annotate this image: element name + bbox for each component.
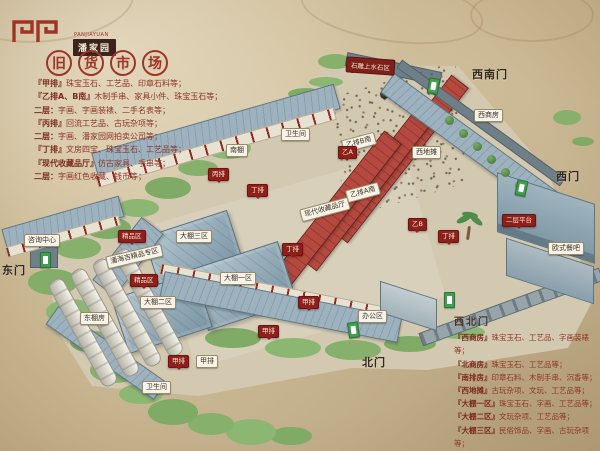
bush [501, 168, 510, 177]
legend-line: 『大棚一区』珠宝玉石、字画、工艺品等； [454, 397, 600, 410]
legend-line: 『大棚二区』文玩杂项、工艺品等； [454, 410, 600, 423]
legend-line: 『南排房』印章石料、木制手串、沉香等； [454, 371, 600, 384]
legend-line: 二层：字画、潘家园网拍卖公司等； [34, 130, 259, 143]
row-ding-badge: 丁排 [438, 230, 459, 243]
gate-signboard-icon [347, 321, 360, 338]
boutique-zone-badge: 精品区 [130, 274, 158, 287]
restroom-label: 卫生间 [142, 381, 171, 394]
east-shed-label: 东棚房 [80, 312, 109, 325]
legend-line: 二层：字画、字画装裱、二手名表等； [34, 104, 259, 117]
title-char: 货 [78, 50, 104, 76]
bush [473, 142, 482, 151]
bush [487, 155, 496, 164]
row-bing-badge: 丙排 [208, 168, 229, 181]
title-char: 市 [110, 50, 136, 76]
west-commercial-building-label: 西商房 [474, 109, 503, 122]
panjiayuan-logo: PANJIAYUAN 潘家园 [10, 14, 180, 48]
foliage-east [553, 110, 581, 125]
restroom-label: 卫生间 [281, 128, 310, 141]
title-char: 场 [142, 50, 168, 76]
shed-zone-2-label: 大棚二区 [140, 296, 176, 309]
row-jia-badge: 甲排 [298, 296, 319, 309]
boutique-zone-badge: 精品区 [118, 230, 146, 243]
southwest-gate-label: 西南门 [472, 66, 508, 82]
east-gate-label: 东门 [2, 262, 26, 278]
legend-line: 『丙排』回流工艺品、古玩杂项等； [34, 117, 259, 130]
row-yi-b-badge: 乙B [408, 218, 427, 231]
row-jia-label: 甲排 [196, 355, 218, 368]
row-ding-badge: 丁排 [282, 243, 303, 256]
logo-subtext: PANJIAYUAN [74, 32, 109, 38]
second-floor-terrace-badge: 二层平台 [502, 214, 536, 227]
row-ding-badge: 丁排 [247, 184, 268, 197]
information-center-label: 咨询中心 [24, 234, 60, 247]
gate-signboard-icon [40, 252, 51, 268]
legend-line: 『乙排A、B南』木制手串、家具小件、珠宝玉石等； [34, 90, 259, 103]
cloud-motif [296, 0, 487, 54]
west-gate-label: 西门 [556, 168, 580, 184]
south-shed-label: 南棚 [226, 144, 248, 157]
northwest-gate-label: 西北门 [454, 316, 600, 329]
stone-carving-area-sign: 石雕上水石区 [346, 56, 396, 75]
shed-zone-3-label: 大棚三区 [176, 230, 212, 243]
bush [459, 129, 468, 138]
row-jia-badge: 甲排 [168, 355, 189, 368]
logo-emblem [10, 14, 62, 46]
legend-line: 『西商房』珠宝玉石、工艺品、字画装裱等； [454, 331, 600, 357]
office-area-label: 办公区 [358, 310, 387, 323]
west-flea-ground-label: 西地摊 [412, 146, 441, 159]
legend-line: 『大棚三区』民俗饰品、字画、古玩杂项等； [454, 424, 600, 450]
shed-zone-1-label: 大棚一区 [220, 272, 256, 285]
row-yi-a-badge: 乙A [338, 146, 357, 159]
title-char: 旧 [46, 50, 72, 76]
legend-right: 西北门 『西商房』珠宝玉石、工艺品、字画装裱等； 『北商房』珠宝玉石、工艺品等；… [454, 316, 600, 451]
panjiayuan-market-map: PANJIAYUAN 潘家园 旧 货 市 场 『甲排』珠宝玉石、工艺品、印章石料… [0, 0, 600, 451]
gate-signboard-icon [444, 292, 455, 308]
restaurant-label: 欧式餐吧 [548, 242, 584, 255]
legend-line: 『北商房』珠宝玉石、工艺品等； [454, 358, 600, 371]
cloud-motif [470, 0, 594, 42]
north-gate-label: 北门 [362, 354, 386, 370]
bush [445, 116, 454, 125]
row-jia-badge: 甲排 [258, 325, 279, 338]
legend-line: 『甲排』珠宝玉石、工艺品、印章石料等； [34, 77, 259, 90]
legend-line: 『西地摊』古玩杂项、文玩、工艺品等； [454, 384, 600, 397]
page-title: 旧 货 市 场 [46, 50, 168, 76]
